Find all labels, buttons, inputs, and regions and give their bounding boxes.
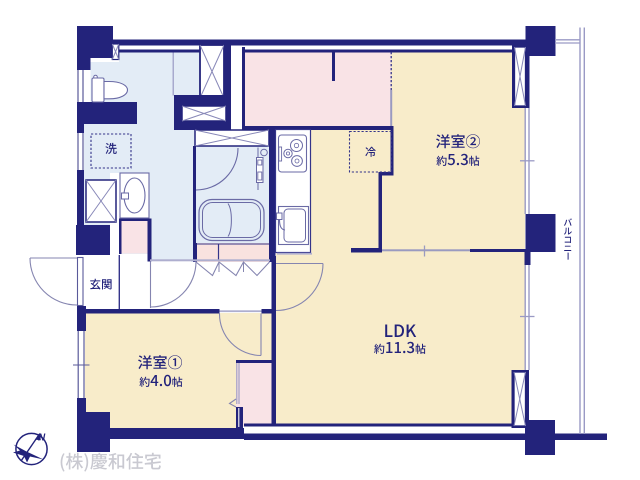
svg-text:N: N: [38, 433, 46, 444]
